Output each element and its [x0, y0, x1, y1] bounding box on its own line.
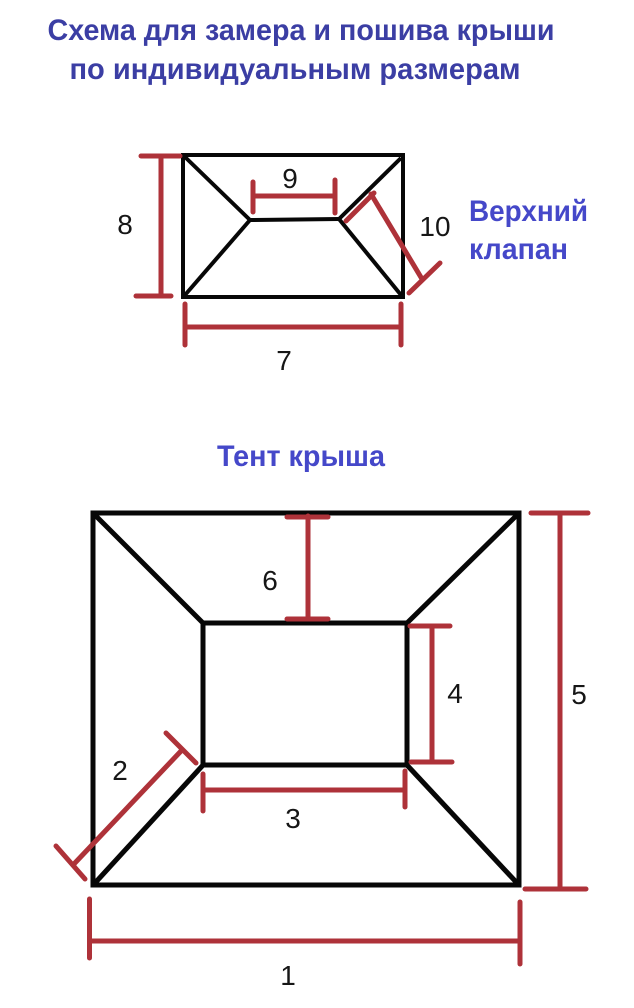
svg-text:6: 6 — [262, 565, 278, 596]
svg-text:клапан: клапан — [469, 233, 568, 266]
svg-text:8: 8 — [117, 209, 133, 240]
svg-text:1: 1 — [280, 960, 296, 991]
svg-text:4: 4 — [447, 678, 463, 709]
svg-text:9: 9 — [282, 163, 298, 194]
svg-text:5: 5 — [571, 679, 587, 710]
svg-text:2: 2 — [112, 755, 128, 786]
svg-text:7: 7 — [276, 345, 292, 376]
svg-text:3: 3 — [285, 803, 301, 834]
svg-text:10: 10 — [419, 211, 450, 242]
svg-text:Верхний: Верхний — [469, 195, 588, 228]
svg-text:Тент крыша: Тент крыша — [217, 440, 385, 473]
svg-text:по индивидуальным размерам: по индивидуальным размерам — [70, 53, 521, 86]
svg-text:Схема для замера и пошива крыш: Схема для замера и пошива крыши — [48, 14, 555, 47]
